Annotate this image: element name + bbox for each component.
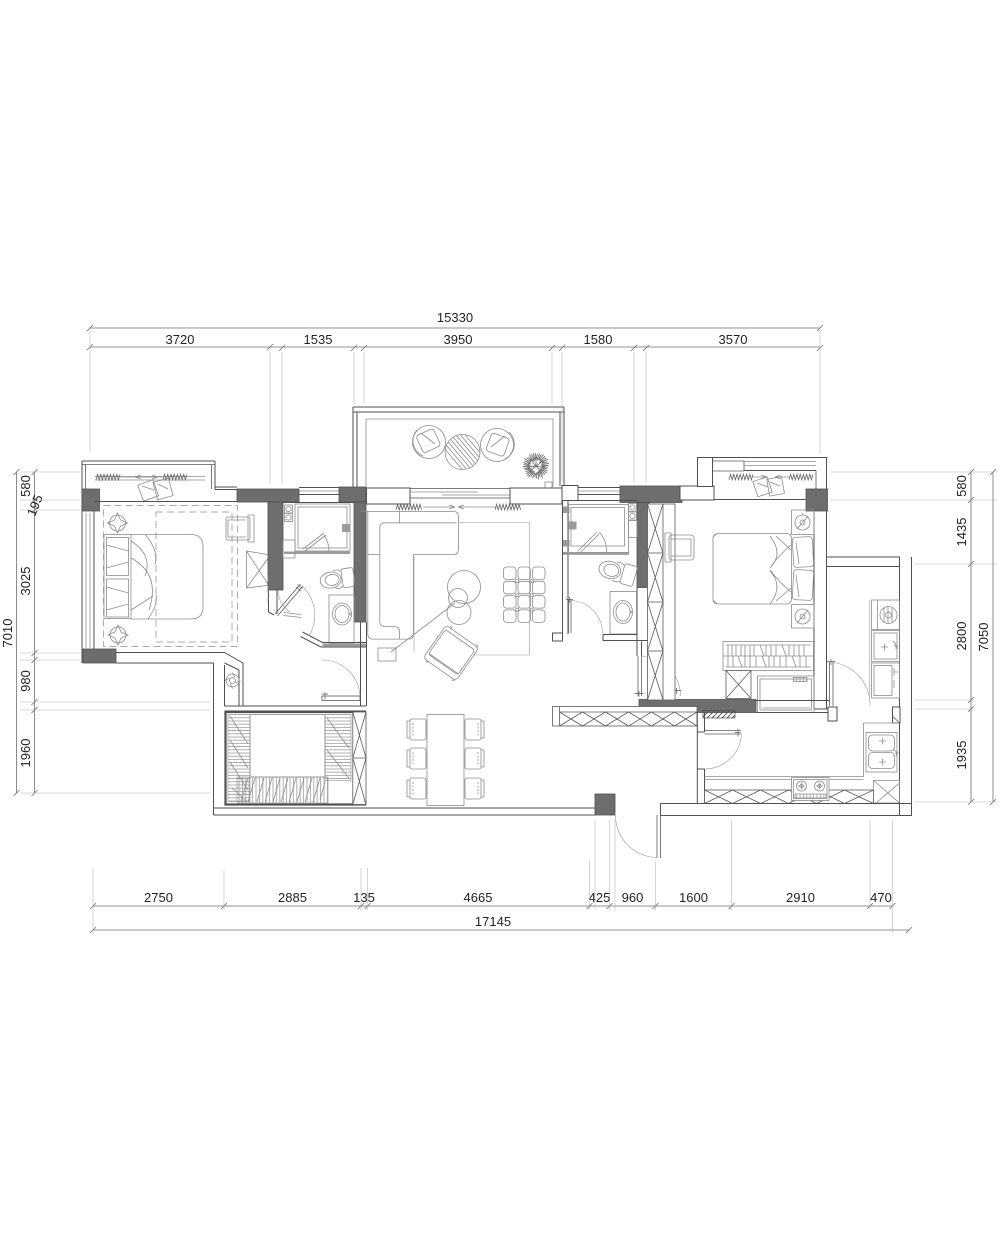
svg-text:4665: 4665 — [464, 890, 493, 905]
svg-text:135: 135 — [353, 890, 375, 905]
svg-text:580: 580 — [954, 475, 969, 497]
svg-text:1960: 1960 — [18, 739, 33, 768]
svg-text:960: 960 — [622, 890, 644, 905]
svg-text:2750: 2750 — [144, 890, 173, 905]
svg-text:7010: 7010 — [0, 619, 15, 648]
svg-text:1935: 1935 — [954, 741, 969, 770]
svg-text:425: 425 — [589, 890, 611, 905]
svg-text:980: 980 — [18, 670, 33, 692]
svg-text:1600: 1600 — [679, 890, 708, 905]
svg-text:3950: 3950 — [444, 332, 473, 347]
svg-text:17145: 17145 — [475, 914, 511, 929]
svg-text:1580: 1580 — [584, 332, 613, 347]
svg-text:470: 470 — [870, 890, 892, 905]
svg-text:3570: 3570 — [719, 332, 748, 347]
svg-text:7050: 7050 — [976, 623, 991, 652]
svg-text:3025: 3025 — [18, 567, 33, 596]
svg-text:15330: 15330 — [437, 310, 473, 325]
svg-text:2885: 2885 — [278, 890, 307, 905]
svg-text:1435: 1435 — [954, 518, 969, 547]
svg-text:2910: 2910 — [786, 890, 815, 905]
svg-text:1535: 1535 — [304, 332, 333, 347]
svg-text:2800: 2800 — [954, 622, 969, 651]
svg-text:3720: 3720 — [166, 332, 195, 347]
